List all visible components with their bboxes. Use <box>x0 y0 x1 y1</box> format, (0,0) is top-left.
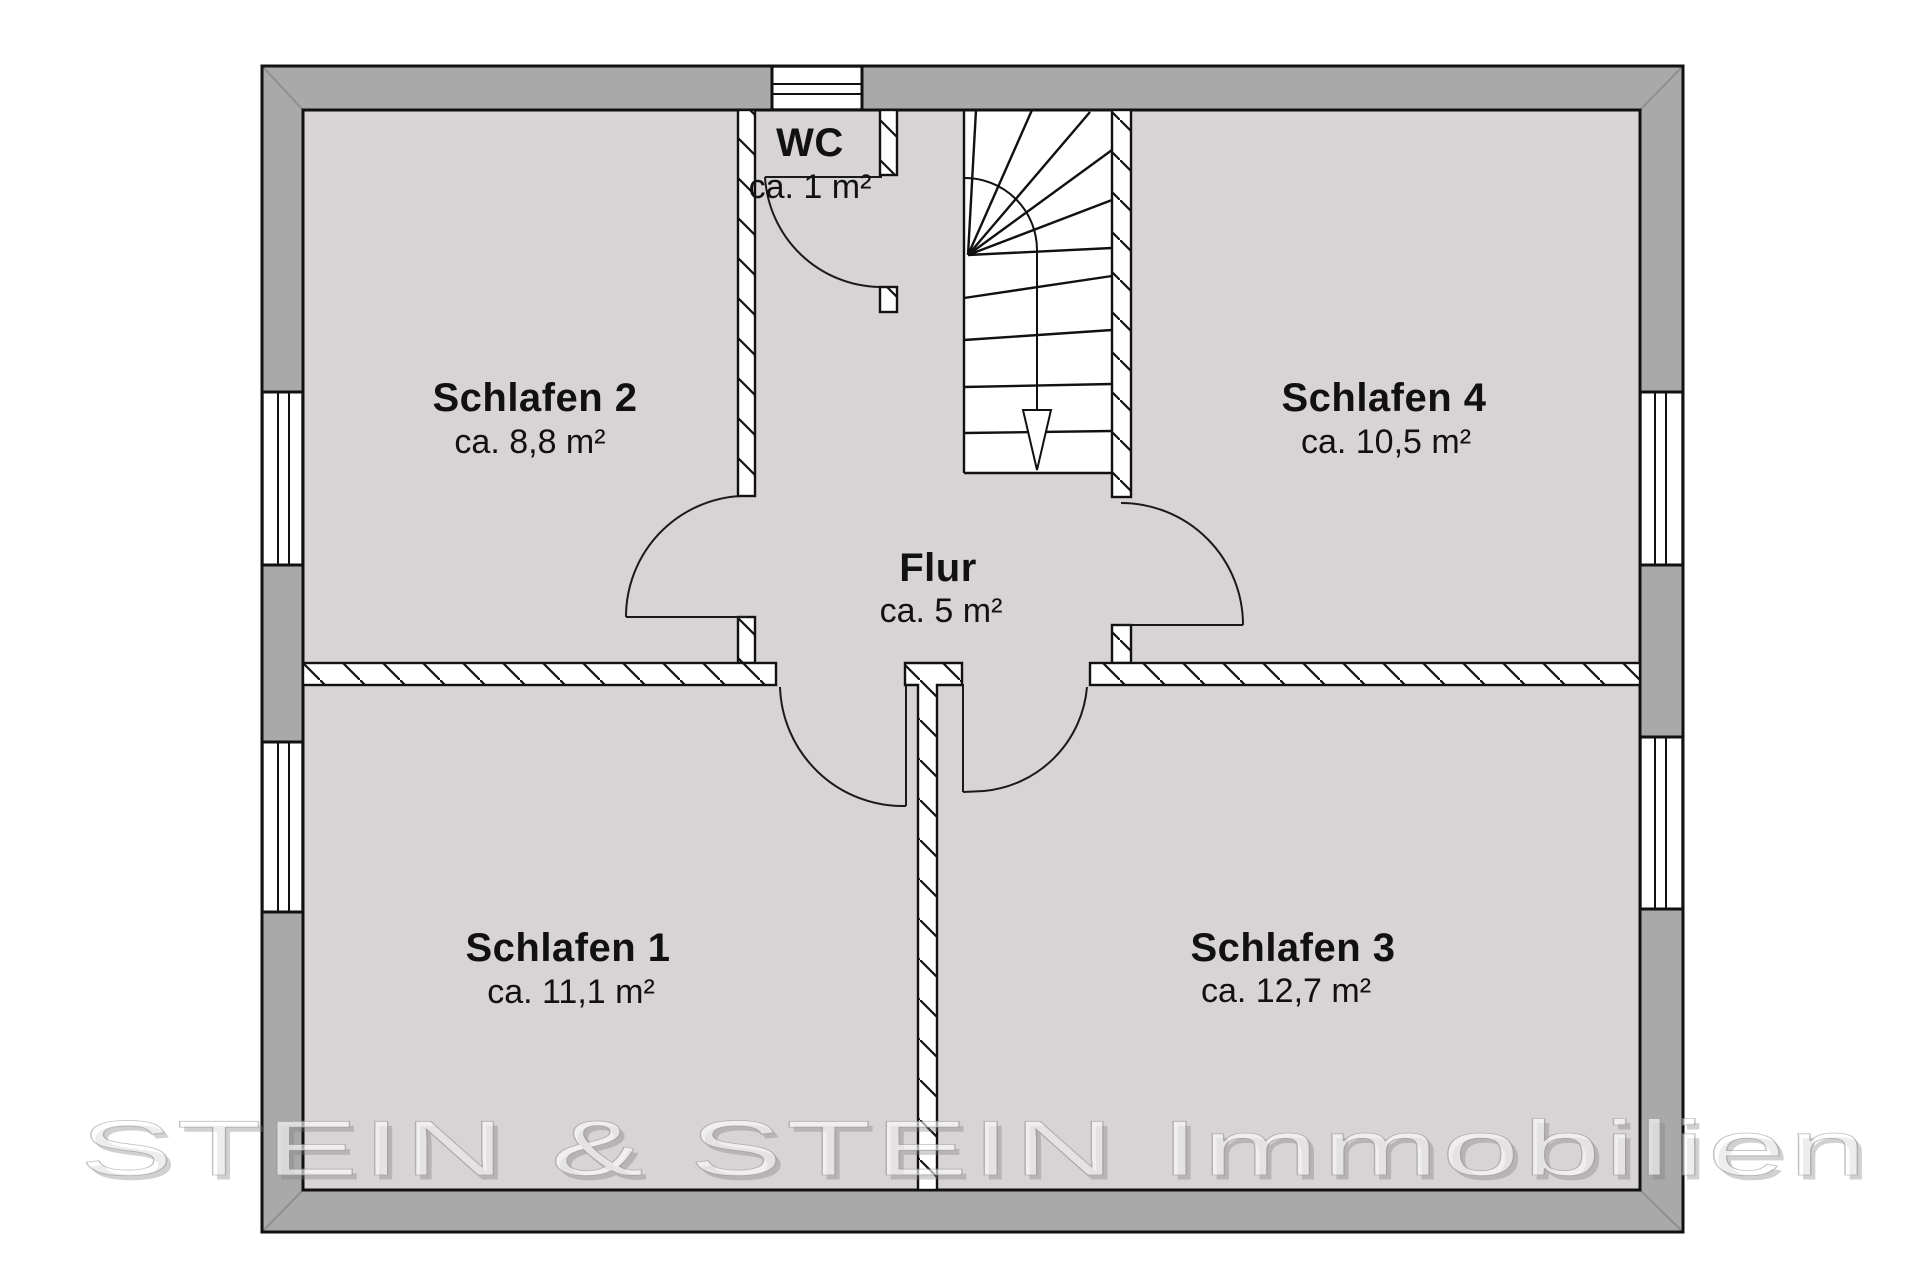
wall-horizontal-right <box>1090 663 1640 685</box>
room-label-schlafen4: Schlafen 4 <box>1281 376 1486 420</box>
wall-stair-right-stub <box>1112 625 1131 663</box>
wall-wc-right <box>880 110 897 175</box>
wall-wc-right-stub <box>880 287 897 312</box>
room-area-schlafen3: ca. 12,7 m² <box>1201 972 1371 1010</box>
window-right-upper <box>1640 392 1683 565</box>
window-left-lower <box>262 742 303 912</box>
room-label-schlafen1: Schlafen 1 <box>465 926 670 970</box>
window-right-lower <box>1640 737 1683 909</box>
floorplan-canvas: Schlafen 2 ca. 8,8 m² WC ca. 1 m² Schlaf… <box>0 0 1920 1280</box>
wall-wc-left-stub <box>738 617 755 663</box>
room-label-schlafen2: Schlafen 2 <box>432 376 637 420</box>
floorplan-page: Schlafen 2 ca. 8,8 m² WC ca. 1 m² Schlaf… <box>0 0 1920 1280</box>
watermark-text: STEIN & STEIN Immobilien <box>80 1104 1870 1192</box>
wall-stair-right <box>1112 110 1131 497</box>
room-label-flur: Flur <box>899 546 977 590</box>
watermark: STEIN & STEIN Immobilien STEIN & STEIN I… <box>80 1104 1875 1197</box>
room-area-schlafen4: ca. 10,5 m² <box>1301 423 1471 461</box>
window-top <box>772 66 862 110</box>
room-label-wc: WC <box>776 121 844 165</box>
room-area-wc: ca. 1 m² <box>749 168 872 206</box>
room-area-schlafen2: ca. 8,8 m² <box>454 423 605 461</box>
room-area-schlafen1: ca. 11,1 m² <box>487 973 655 1011</box>
window-left-upper <box>262 392 303 565</box>
room-label-schlafen3: Schlafen 3 <box>1190 926 1395 970</box>
wall-horizontal-left <box>303 663 776 685</box>
room-area-flur: ca. 5 m² <box>880 592 1003 630</box>
